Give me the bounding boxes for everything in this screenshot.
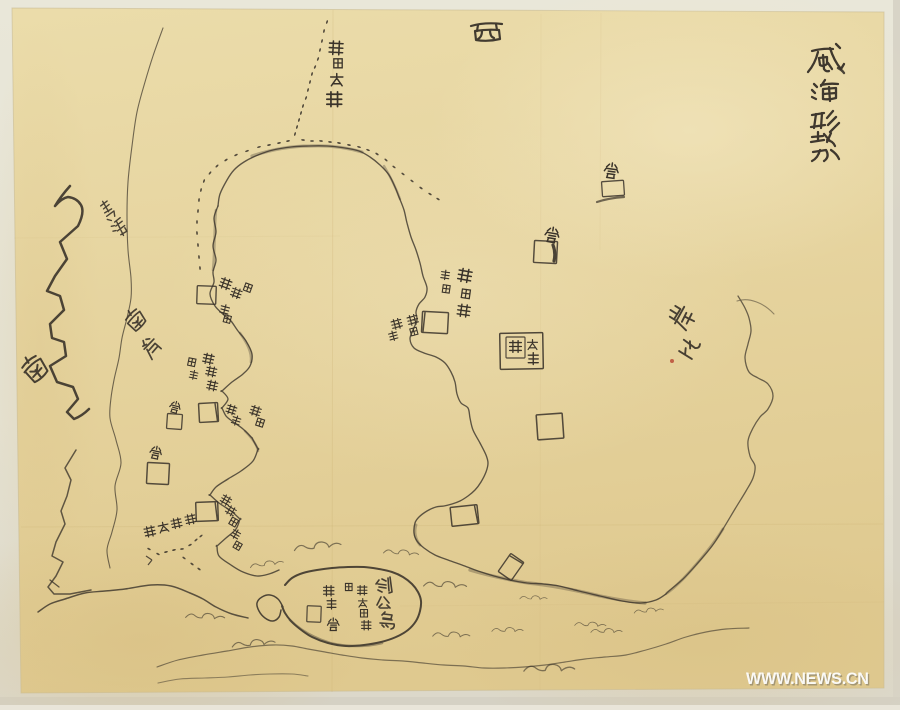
svg-text:WWW.NEWS.CN: WWW.NEWS.CN — [746, 670, 869, 688]
